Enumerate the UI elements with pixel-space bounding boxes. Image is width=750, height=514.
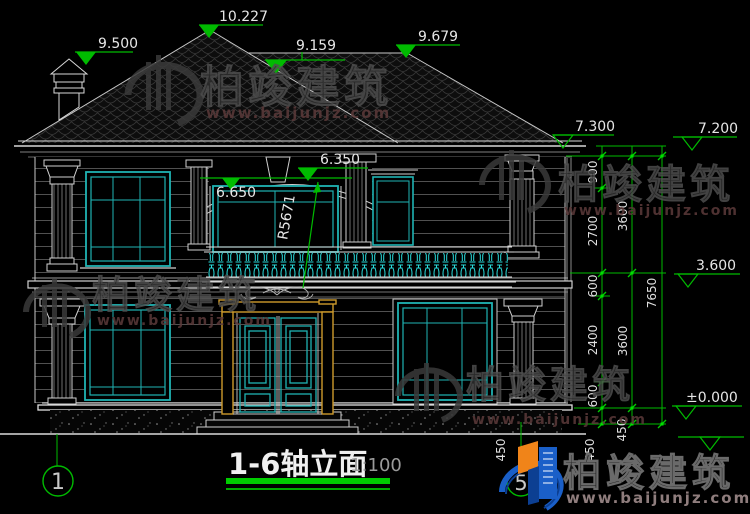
watermark-url: www.baijunjz.com: [564, 203, 739, 219]
watermark-brand: 柏竣建筑: [558, 162, 734, 208]
level-arch-lower: 6.650: [216, 185, 256, 201]
level-zero: ±0.000: [686, 390, 738, 406]
axis-left: 1: [43, 434, 73, 496]
logo-mark: [502, 441, 561, 508]
watermark-brand: 柏竣建筑: [466, 363, 634, 407]
level-valley: 9.159: [296, 38, 336, 54]
level-chimney: 9.500: [98, 36, 138, 52]
level-ridge: 9.679: [418, 29, 458, 45]
dim-2700: 2700: [586, 216, 600, 247]
eave-fascia: [14, 141, 586, 157]
watermark-url: www.baijunjz.com: [97, 313, 272, 329]
title-block: 1-6轴立面 1:100: [226, 447, 402, 490]
dim-600a: 600: [586, 275, 600, 298]
cad-elevation-drawing: 900 2700 600 2400 600 450 3600 3600 450 …: [0, 0, 750, 514]
logo-url-text: www.baijunjz.com: [566, 489, 750, 507]
dim-3600b: 3600: [616, 326, 630, 357]
window-2f-left: [86, 172, 170, 266]
dim-2400: 2400: [586, 325, 600, 356]
level-peak: 10.227: [219, 9, 268, 25]
level-second-floor: 3.600: [696, 258, 736, 274]
axis-left-label: 1: [51, 470, 65, 495]
level-eave-right: 7.200: [698, 121, 738, 137]
watermark-url: www.baijunjz.com: [472, 412, 647, 428]
drawing-scale: 1:100: [350, 455, 402, 476]
title-underline-thin: [226, 488, 390, 490]
elevation-svg: 900 2700 600 2400 600 450 3600 3600 450 …: [0, 0, 750, 514]
title-underline-thick: [226, 478, 390, 484]
brand-logo: 柏竣建筑 www.baijunjz.com: [502, 441, 750, 508]
level-eave-left: 7.300: [575, 119, 615, 135]
watermark-brand: 柏竣建筑: [92, 273, 260, 317]
level-arch-upper: 6.350: [320, 152, 360, 168]
dim-7650: 7650: [645, 278, 659, 309]
drawing-title: 1-6轴立面: [228, 447, 367, 481]
entry-steps: [197, 412, 358, 434]
window-2f-narrow: [373, 177, 413, 245]
watermark-url: www.baijunjz.com: [206, 104, 391, 122]
dim-450-step: 450: [494, 439, 508, 462]
